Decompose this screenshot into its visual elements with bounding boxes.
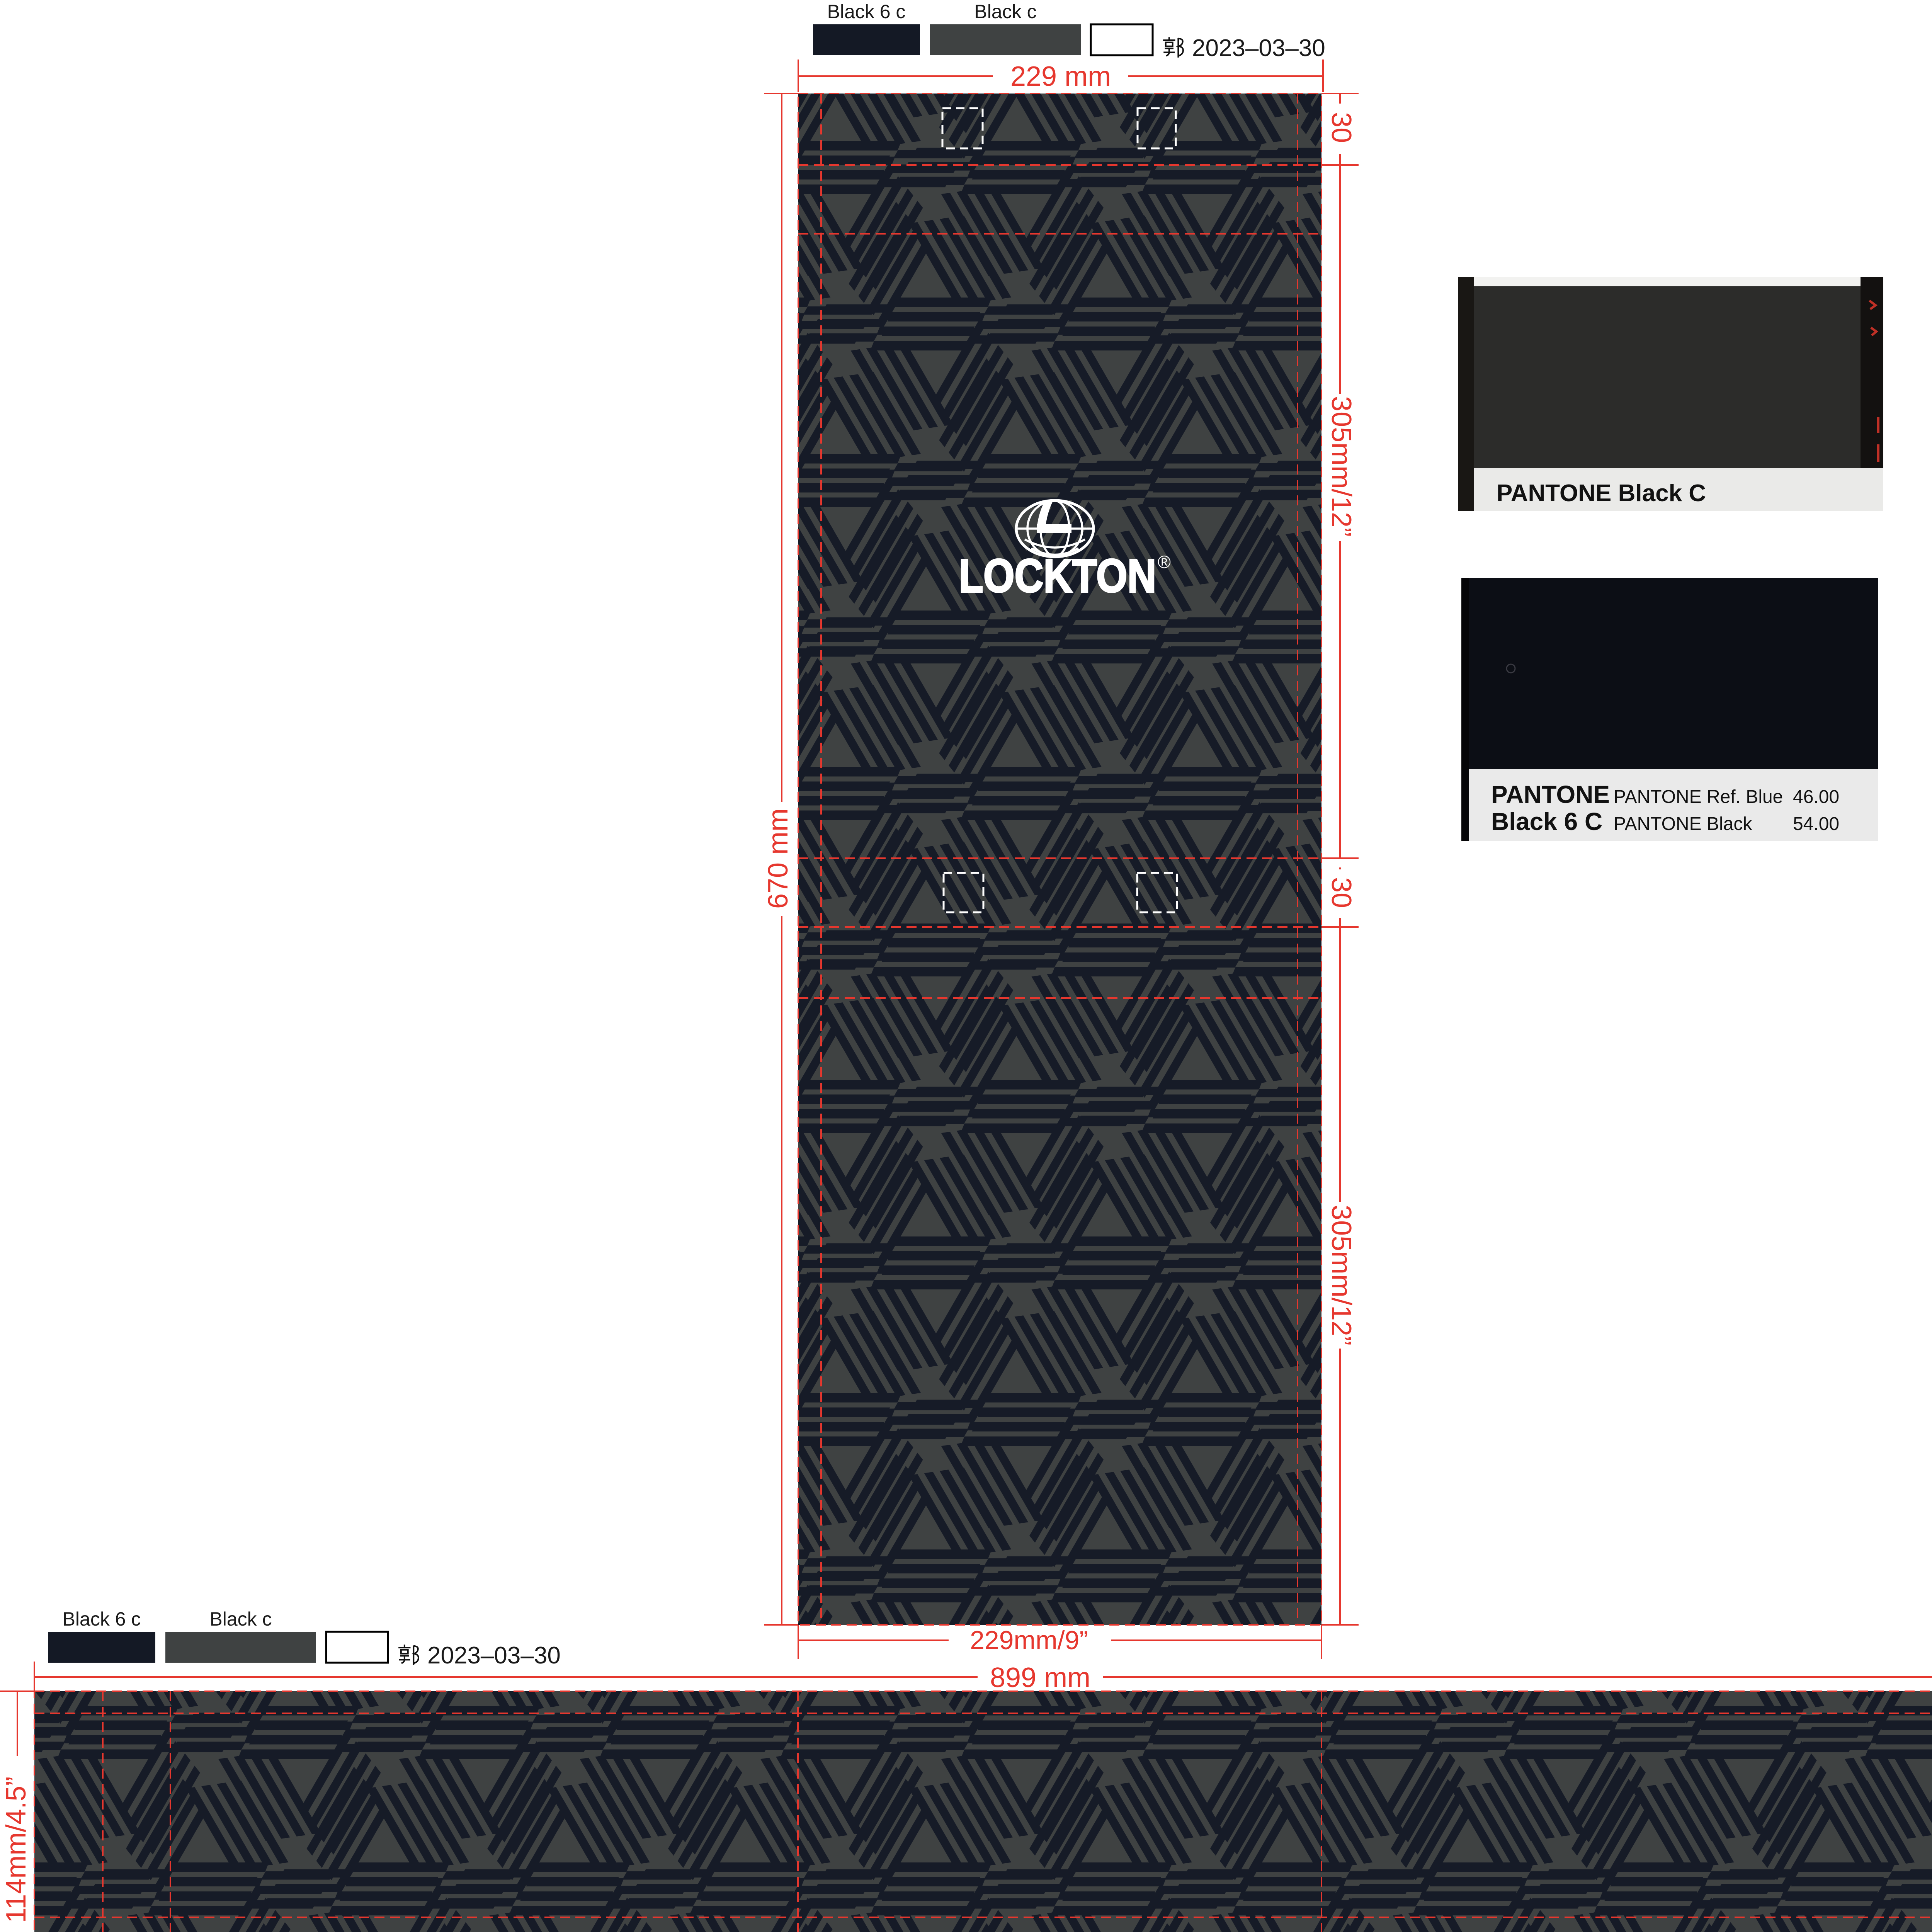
svg-text:229mm/9”: 229mm/9” <box>970 1626 1088 1655</box>
svg-text:PANTONE: PANTONE <box>1491 781 1610 808</box>
svg-text:114mm/4.5”: 114mm/4.5” <box>1 1777 32 1923</box>
svg-text:PANTONE Black C: PANTONE Black C <box>1497 480 1706 507</box>
svg-text:Black 6 c: Black 6 c <box>63 1608 141 1630</box>
svg-text:54.00: 54.00 <box>1793 814 1839 834</box>
svg-text:PANTONE Black: PANTONE Black <box>1614 814 1752 834</box>
svg-text:229 mm: 229 mm <box>1010 61 1111 92</box>
svg-text:46.00: 46.00 <box>1793 787 1839 807</box>
svg-text:670 mm: 670 mm <box>763 808 794 909</box>
svg-text:899 mm: 899 mm <box>990 1662 1090 1693</box>
svg-text:®: ® <box>1158 552 1171 572</box>
svg-text:LOCKTON: LOCKTON <box>959 549 1156 602</box>
svg-text:Black c: Black c <box>974 1 1036 22</box>
svg-text:Black 6 C: Black 6 C <box>1491 808 1602 835</box>
svg-text:PANTONE Ref. Blue: PANTONE Ref. Blue <box>1614 787 1783 807</box>
svg-text:2023–03–30: 2023–03–30 <box>427 1642 561 1669</box>
svg-text:30: 30 <box>1326 877 1357 908</box>
svg-text:30: 30 <box>1326 112 1357 143</box>
svg-text:Black 6 c: Black 6 c <box>827 1 906 22</box>
svg-text:2023–03–30: 2023–03–30 <box>1192 35 1325 61</box>
svg-text:305mm/12”: 305mm/12” <box>1326 396 1357 537</box>
svg-text:Black c: Black c <box>209 1608 272 1630</box>
svg-text:305mm/12”: 305mm/12” <box>1326 1205 1357 1345</box>
